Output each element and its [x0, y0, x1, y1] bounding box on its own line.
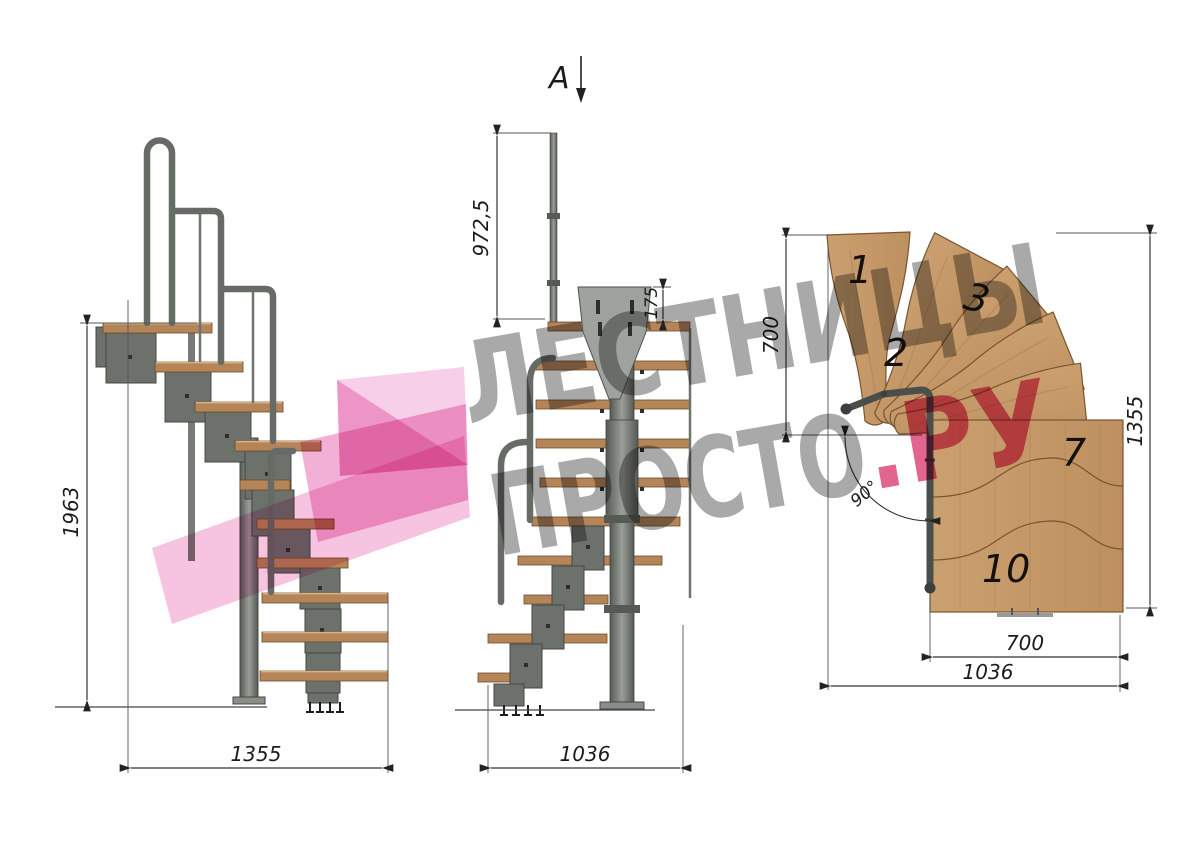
front-rail-post	[550, 133, 557, 323]
technical-drawing-page: 1963 1355 A	[0, 0, 1200, 849]
dim-side-length: 1355	[231, 742, 282, 766]
dim-front-depth: 1036	[560, 742, 611, 766]
section-arrowhead	[576, 88, 586, 103]
side-column-foot	[233, 697, 265, 704]
step-number-7: 7	[1062, 431, 1086, 475]
side-view-structure	[55, 141, 388, 713]
dim-side-height: 1963	[59, 487, 83, 538]
section-arrow: A	[547, 56, 586, 103]
step-number-10: 10	[982, 547, 1030, 591]
handrail-loop-2	[174, 211, 221, 362]
column-collar	[604, 605, 640, 613]
dim-plan-height: 1355	[1123, 396, 1147, 447]
front-column-foot	[600, 702, 644, 709]
post-collar	[547, 280, 560, 286]
section-label: A	[547, 61, 570, 96]
post-collar	[547, 213, 560, 219]
dim-plan-width-inner: 700	[1006, 631, 1044, 655]
dim-rail-height: 972,5	[469, 199, 493, 256]
handrail-loop-1	[147, 141, 172, 324]
staircase-drawing: 1963 1355 A	[0, 0, 1200, 849]
dim-plan-width-total: 1036	[963, 660, 1014, 684]
